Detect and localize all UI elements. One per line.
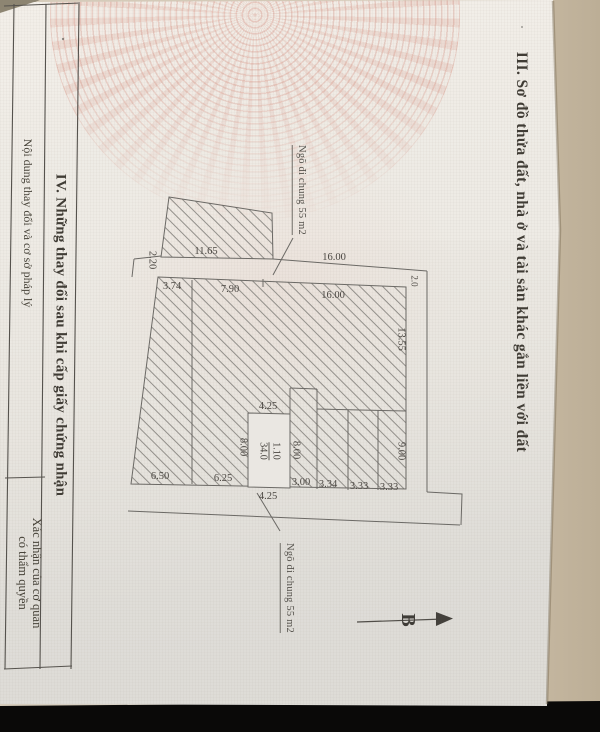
section3-title: III. Sơ đồ thửa đất, nhà ở và tài sản kh…	[513, 52, 529, 453]
alley-label-top: Ngõ đi chung 55 m2	[292, 145, 306, 235]
alley-label-bottom: Ngõ đi chung 55 m2	[280, 543, 294, 633]
dimension-label: 16.00	[321, 291, 345, 302]
dimension-label: 3.34	[319, 480, 337, 491]
dimension-label: 3.33	[380, 483, 398, 494]
column-header-content: Nội dung thay đổi và cơ sở pháp lý	[22, 139, 34, 308]
dimension-label: 3.74	[163, 282, 181, 293]
dimension-label: 9.00	[395, 442, 406, 460]
parcel-id-area: 1.10 34.0	[258, 442, 281, 460]
north-label: B	[398, 613, 418, 626]
dimension-label: 11.65	[194, 247, 217, 258]
diagram-labels: III. Sơ đồ thửa đất, nhà ở và tài sản kh…	[0, 0, 600, 732]
column-header-authority: Xác nhận của cơ quan có thẩm quyền	[16, 518, 44, 629]
parcel-number: 1.10	[271, 442, 281, 460]
dimension-label: 3.00	[292, 478, 310, 489]
scan-photo: { "colors": { "backdrop_beige": "#d2c7b4…	[0, 0, 600, 732]
dimension-label: 2.20	[146, 251, 157, 269]
dimension-label: 13.55	[395, 327, 406, 351]
dimension-label: 8.00	[237, 438, 248, 456]
parcel-area: 34.0	[258, 442, 270, 460]
dimension-label: 4.25	[259, 492, 277, 503]
dimension-label: 4.25	[259, 402, 277, 413]
dimension-label: 8.00	[290, 441, 301, 459]
dimension-label: 3.33	[350, 482, 368, 493]
dimension-label: 6.25	[214, 474, 232, 485]
dimension-label: 7.90	[221, 285, 239, 296]
dimension-label: 2.0	[410, 275, 419, 286]
dimension-label: 16.00	[322, 253, 346, 264]
dimension-label: 6.50	[151, 472, 169, 483]
section4-title: IV. Những thay đổi sau khi cấp giấy chứn…	[53, 174, 68, 496]
